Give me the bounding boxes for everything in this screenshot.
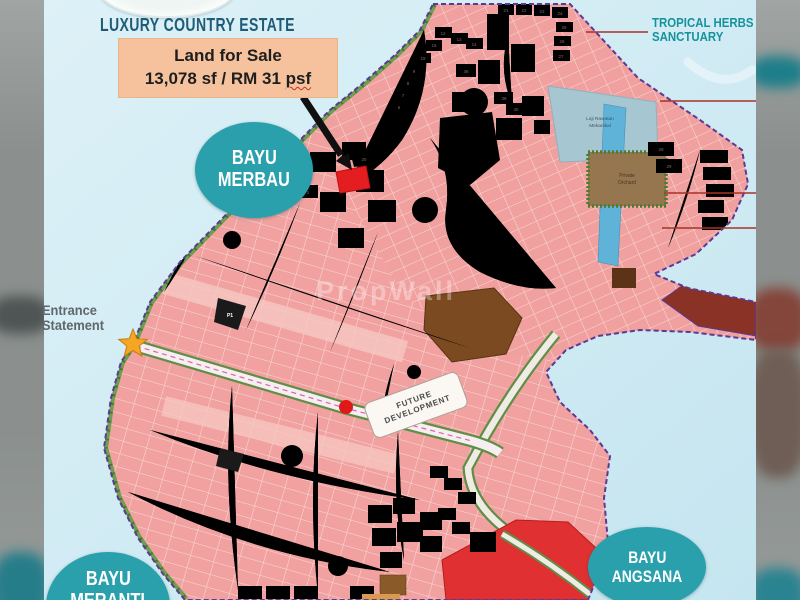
red-road-dot: [339, 400, 353, 414]
callout-line1: Land for Sale: [174, 45, 282, 68]
svg-text:29: 29: [666, 164, 672, 169]
svg-text:24: 24: [557, 11, 563, 16]
site-plan-image: Loji Rawatan Mekanikal Private Orchard 2…: [0, 0, 800, 600]
blurred-edge-left: [0, 0, 44, 600]
zone-bayu-angsana: BAYUANGSANA: [588, 527, 706, 600]
svg-text:28: 28: [658, 147, 664, 152]
svg-text:14: 14: [471, 42, 477, 47]
watermark: PropWall: [316, 276, 456, 307]
tropical-herbs-sanctuary-label: TROPICAL HERBS SANCTUARY: [652, 16, 772, 45]
zone-bayu-merbau: BAYUMERBAU: [195, 122, 313, 218]
svg-text:27: 27: [558, 54, 564, 59]
entrance-statement-label: Entrance Statement: [42, 303, 107, 333]
svg-text:20: 20: [361, 157, 367, 162]
orchard-label: Private Orchard: [618, 173, 636, 186]
svg-text:12: 12: [440, 31, 446, 36]
callout-line2: 13,078 sf / RM 31 psf: [145, 68, 311, 91]
psf-unit: psf: [286, 69, 312, 88]
svg-text:15: 15: [420, 56, 426, 61]
svg-text:P1: P1: [227, 313, 233, 319]
svg-text:13: 13: [456, 37, 462, 42]
svg-text:16: 16: [431, 43, 437, 48]
svg-text:22: 22: [521, 8, 527, 13]
land-for-sale-callout: Land for Sale 13,078 sf / RM 31 psf: [118, 38, 338, 98]
svg-text:Mekanikal: Mekanikal: [589, 123, 611, 129]
svg-text:Orchard: Orchard: [618, 180, 636, 186]
svg-text:40: 40: [513, 107, 519, 112]
svg-text:Private: Private: [619, 173, 635, 179]
svg-text:38: 38: [501, 96, 507, 101]
svg-text:36: 36: [463, 69, 469, 74]
svg-text:26: 26: [559, 39, 565, 44]
estate-title: LUXURY COUNTRY ESTATE: [100, 15, 350, 36]
svg-text:Loji Rawatan: Loji Rawatan: [586, 116, 614, 122]
blurred-edge-right: [756, 0, 800, 600]
svg-text:23: 23: [539, 9, 545, 14]
svg-text:21: 21: [503, 8, 509, 13]
dark-brown-lot: [612, 268, 636, 288]
private-orchard-area: [588, 152, 666, 206]
brown-lot-bottom: [380, 575, 406, 595]
svg-text:25: 25: [561, 25, 567, 30]
